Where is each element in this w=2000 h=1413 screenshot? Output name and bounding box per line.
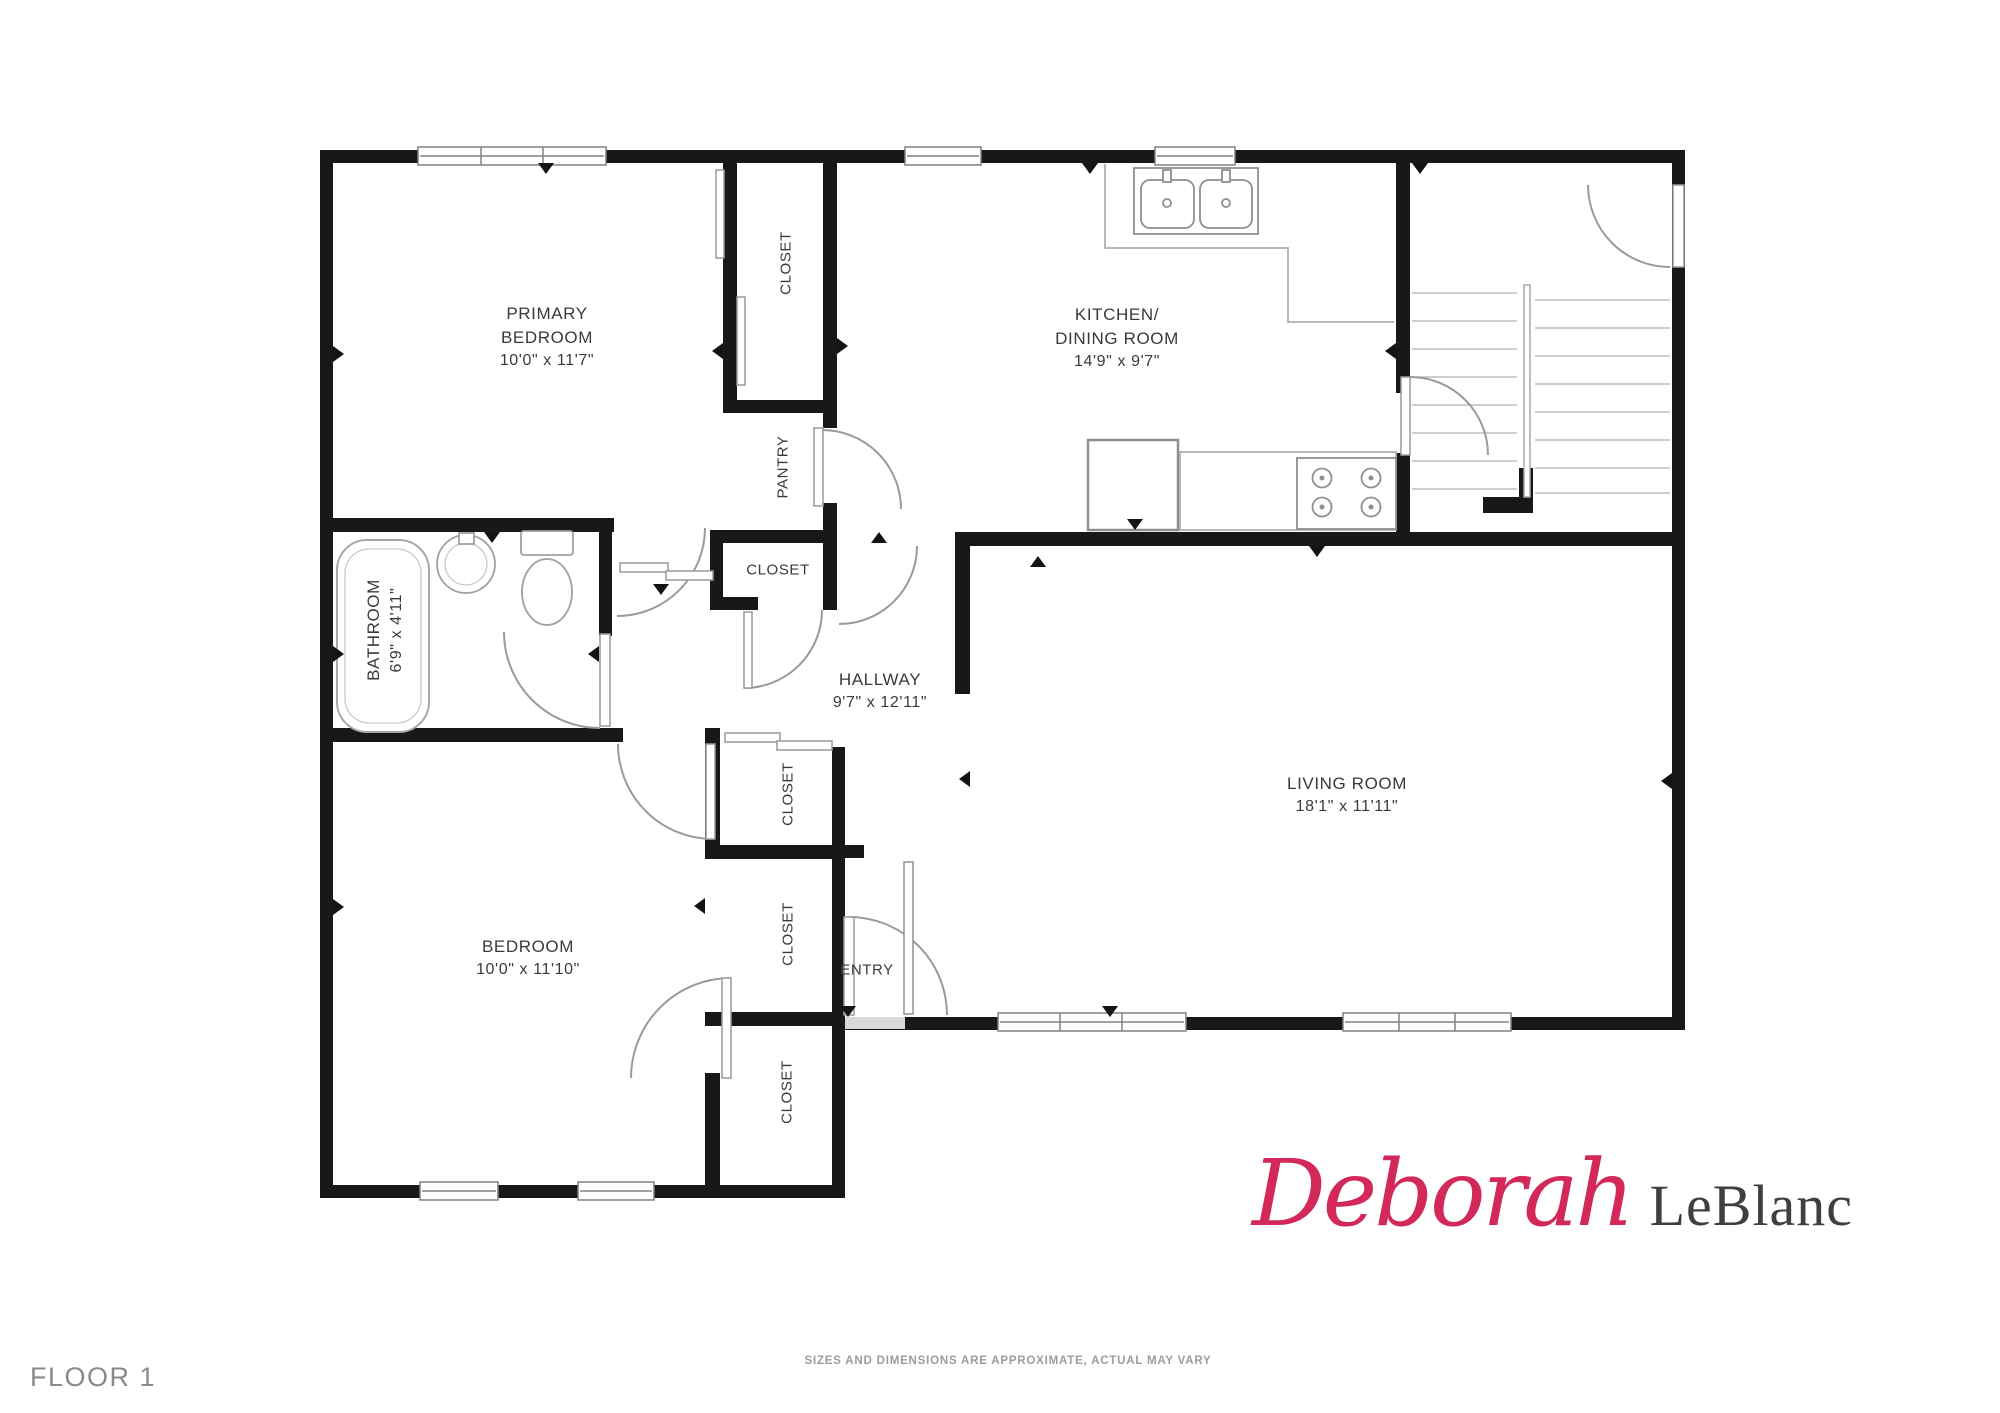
room-label-kitchen-dining: KITCHEN/ DINING ROOM 14'9" x 9'7" bbox=[1055, 303, 1179, 373]
agent-logo: Deborah LeBlanc bbox=[1252, 1148, 1853, 1240]
room-label-bathroom: BATHROOM 6'9" x 4'11" bbox=[362, 579, 408, 681]
toilet bbox=[521, 531, 573, 625]
logo-first-name: Deborah bbox=[1252, 1148, 1632, 1240]
kitchen-sink bbox=[1134, 168, 1258, 234]
stove bbox=[1180, 452, 1396, 530]
entry-sidelight bbox=[904, 862, 913, 1014]
room-label-living-room: LIVING ROOM 18'1" x 11'11" bbox=[1287, 772, 1407, 818]
label-closet-primary: CLOSET bbox=[776, 231, 797, 295]
floor-label: FLOOR 1 bbox=[30, 1362, 156, 1393]
floorplan-page: PRIMARY BEDROOM 10'0" x 11'7" KITCHEN/ D… bbox=[0, 0, 2000, 1413]
disclaimer-text: SIZES AND DIMENSIONS ARE APPROXIMATE, AC… bbox=[804, 1355, 1211, 1367]
refrigerator bbox=[1088, 440, 1178, 530]
label-closet-upper: CLOSET bbox=[778, 762, 799, 826]
staircase bbox=[1412, 285, 1670, 497]
label-pantry: PANTRY bbox=[773, 435, 794, 498]
label-closet-middle: CLOSET bbox=[778, 902, 799, 966]
bathroom-sink bbox=[437, 533, 495, 593]
room-label-hallway: HALLWAY 9'7" x 12'11" bbox=[833, 668, 927, 714]
logo-last-name: LeBlanc bbox=[1650, 1177, 1853, 1235]
room-label-primary-bedroom: PRIMARY BEDROOM 10'0" x 11'7" bbox=[500, 302, 594, 372]
label-closet-lower: CLOSET bbox=[777, 1060, 798, 1124]
room-label-bedroom: BEDROOM 10'0" x 11'10" bbox=[476, 935, 580, 981]
label-entry: ENTRY bbox=[840, 960, 894, 981]
front-door-threshold bbox=[845, 1017, 905, 1029]
label-closet-hall: CLOSET bbox=[746, 560, 810, 581]
